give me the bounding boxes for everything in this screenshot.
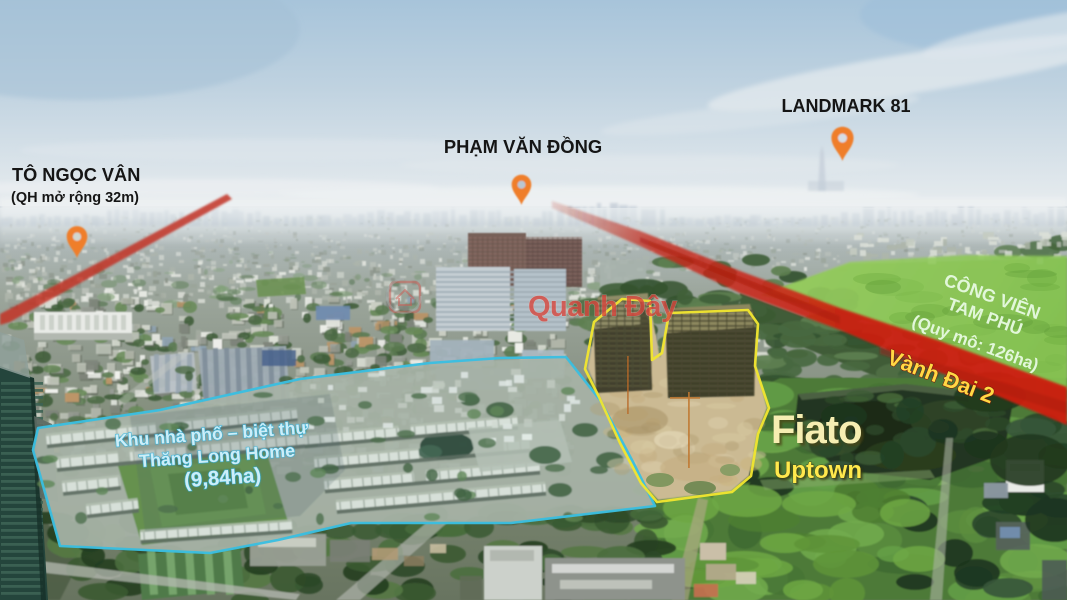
svg-text:TÔ NGỌC VÂN: TÔ NGỌC VÂN xyxy=(12,164,140,185)
svg-text:Uptown: Uptown xyxy=(774,457,862,484)
svg-text:Quanh Đây: Quanh Đây xyxy=(528,291,677,323)
svg-text:Fiato: Fiato xyxy=(771,408,862,452)
svg-text:(QH mở rộng 32m): (QH mở rộng 32m) xyxy=(11,190,139,206)
svg-text:LANDMARK 81: LANDMARK 81 xyxy=(781,96,910,116)
svg-text:PHẠM VĂN ĐỒNG: PHẠM VĂN ĐỒNG xyxy=(444,136,602,157)
